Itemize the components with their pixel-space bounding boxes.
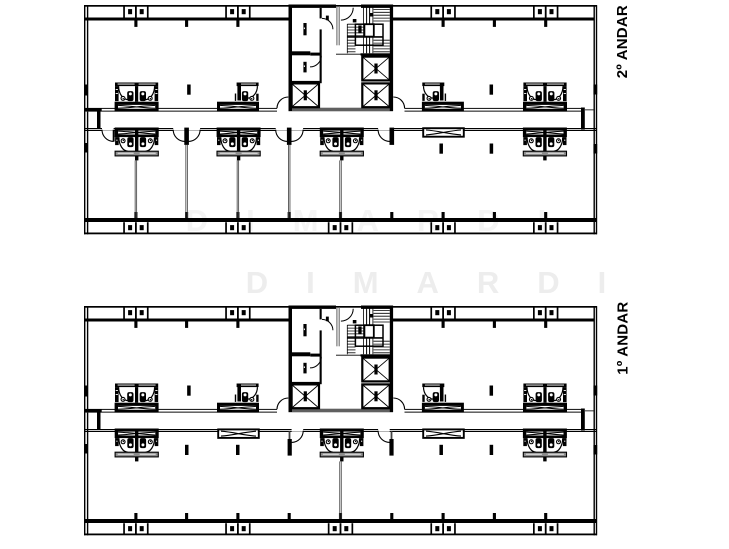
svg-text:1º ANDAR: 1º ANDAR [615, 302, 632, 375]
svg-text:2º ANDAR: 2º ANDAR [614, 5, 631, 78]
svg-text:DIMARDI: DIMARDI [246, 265, 645, 300]
